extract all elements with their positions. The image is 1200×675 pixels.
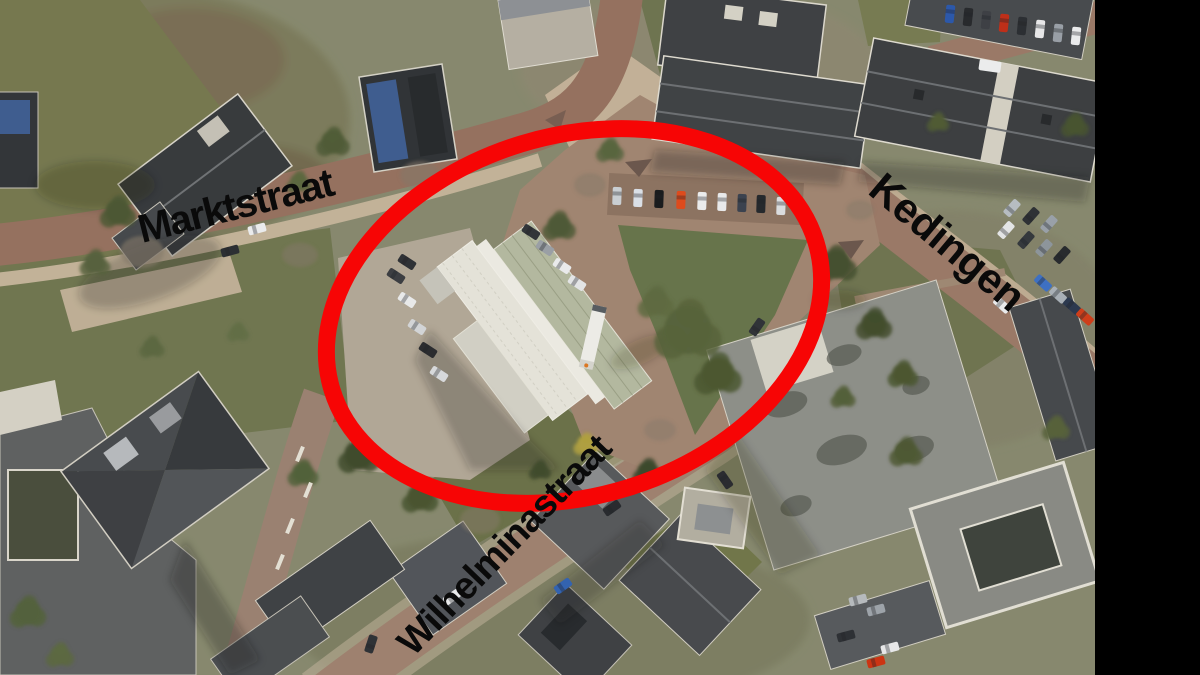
photo-area [0, 0, 1120, 675]
letterbox-right [1095, 0, 1200, 675]
screenshot-root: Marktstraat Kedingen Wilhelminastraat [0, 0, 1200, 675]
aerial-photo [0, 0, 1200, 675]
